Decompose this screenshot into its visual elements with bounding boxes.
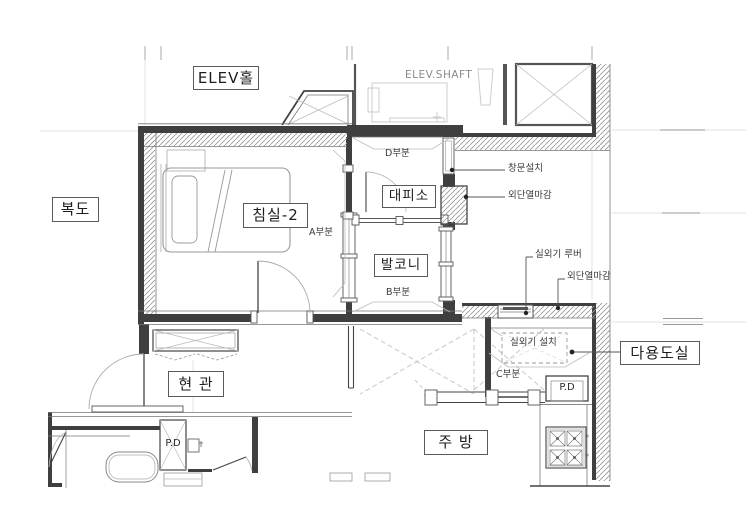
room-label-entrance: 현 관 <box>168 371 224 397</box>
toilet <box>188 439 203 452</box>
room-label-balcony: 발코니 <box>374 254 428 277</box>
section-mark-a: A부분 <box>309 228 333 239</box>
elevator-shaft-walls <box>355 64 592 125</box>
bathroom-door <box>213 457 252 471</box>
label-pd-utility: P.D <box>546 378 588 398</box>
bed <box>161 150 290 252</box>
air-duct-trapezoid <box>282 91 353 125</box>
annotation-outdoor-unit-install: 실외기 설치 <box>510 338 557 349</box>
gas-stove <box>546 427 589 468</box>
room-label-elev-hall: ELEV홀 <box>193 66 259 90</box>
bathtub <box>106 452 158 482</box>
label-pd-bathroom: P.D <box>159 436 187 452</box>
entrance-closet <box>153 330 238 360</box>
annotation-exterior-insulation-top: 외단열마감 <box>508 191 552 202</box>
room-label-kitchen: 주 방 <box>424 430 488 455</box>
section-mark-b: B부분 <box>386 288 410 299</box>
room-label-utility-room: 다용도실 <box>620 341 700 365</box>
section-mark-d: D부분 <box>385 149 410 160</box>
floor-plan-page: ELEV홀 복도 침실-2 대피소 발코니 현 관 주 방 다용도실 ELEV.… <box>0 0 750 530</box>
walls <box>48 64 596 487</box>
lower-fixtures <box>164 473 390 486</box>
room-label-bedroom2: 침실-2 <box>243 203 308 228</box>
bedroom-door <box>251 261 313 323</box>
annotation-exterior-insulation-mid: 외단열마감 <box>567 272 611 283</box>
annotation-window-install: 창문설치 <box>508 164 543 175</box>
section-mark-c: C부분 <box>496 370 520 381</box>
annotation-outdoor-unit-louver: 실외기 루버 <box>535 250 582 261</box>
wall-stub <box>349 326 354 388</box>
sliding-partition <box>352 215 448 225</box>
label-elev-shaft: ELEV.SHAFT <box>405 69 472 81</box>
room-label-shelter: 대피소 <box>382 185 436 208</box>
insulation-block <box>441 186 467 224</box>
louver <box>498 305 533 318</box>
room-label-corridor: 복도 <box>52 197 99 222</box>
